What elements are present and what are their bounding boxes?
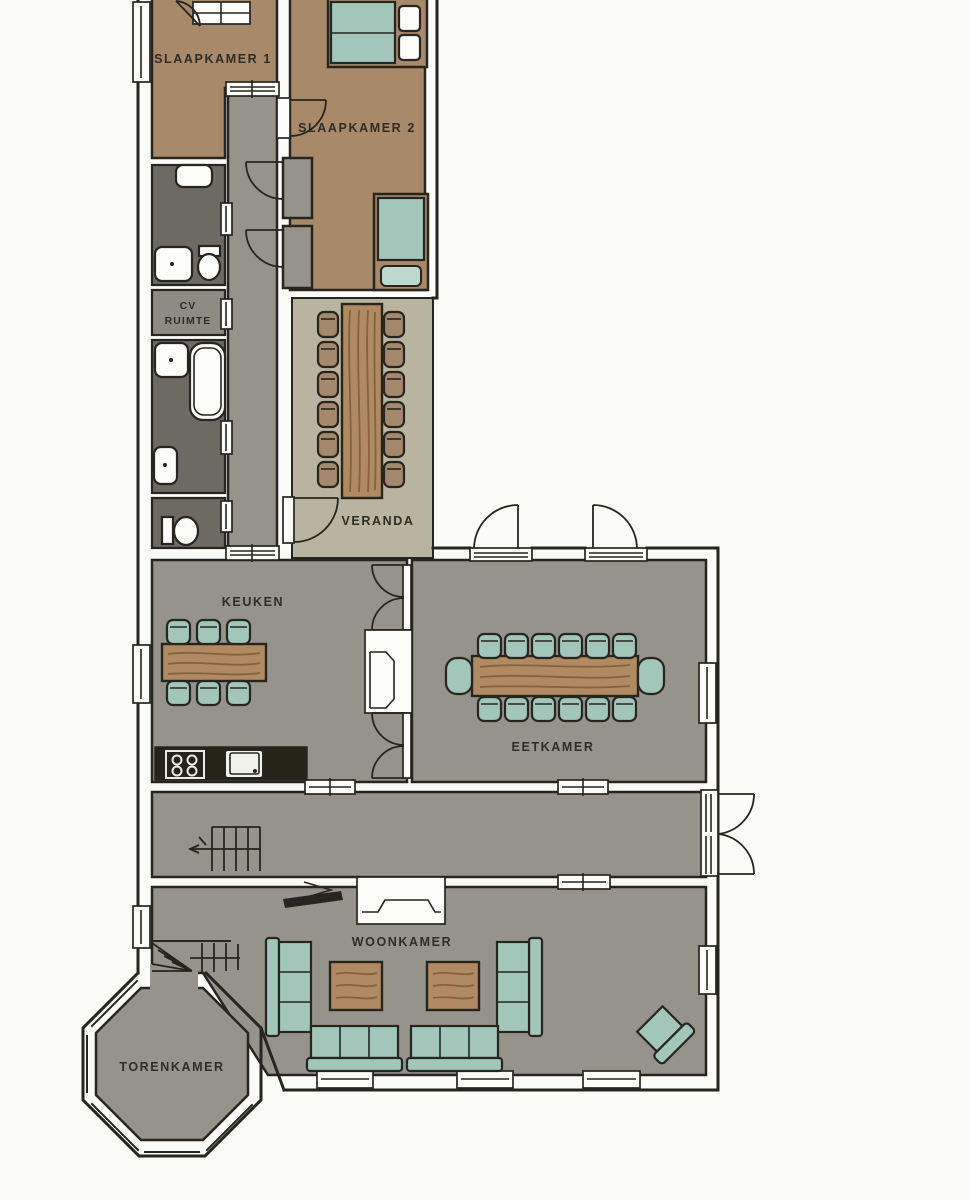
shower	[155, 343, 188, 377]
window	[583, 1071, 640, 1088]
door-arc	[470, 505, 532, 561]
dining-chair	[478, 697, 501, 721]
coffee-table-1	[330, 962, 382, 1010]
veranda-chair	[318, 342, 338, 367]
kitchen-chair	[227, 681, 250, 705]
hallway-north	[228, 95, 277, 550]
door-threshold	[221, 421, 232, 454]
toilet	[198, 246, 220, 280]
label-veranda: VERANDA	[341, 514, 414, 528]
veranda-chair	[318, 312, 338, 337]
north-doors	[470, 505, 647, 561]
door-threshold	[558, 778, 608, 796]
window	[317, 1071, 373, 1088]
dining-chair	[478, 634, 501, 658]
shower	[155, 247, 192, 281]
veranda-chair	[384, 342, 404, 367]
door-threshold	[221, 501, 232, 532]
dining-chair	[446, 658, 472, 694]
door-threshold	[221, 299, 232, 329]
label-torenkamer: TORENKAMER	[119, 1060, 224, 1074]
label-slaapkamer-2: SLAAPKAMER 2	[298, 121, 416, 135]
dining-chair	[505, 634, 528, 658]
window	[133, 906, 150, 948]
single-bed	[374, 194, 428, 290]
kitchen-chair	[197, 620, 220, 644]
kitchen-sink-icon	[225, 750, 263, 778]
door-threshold	[221, 203, 232, 235]
kitchen-table	[162, 644, 266, 681]
window	[457, 1071, 513, 1088]
dining-chair	[638, 658, 664, 694]
sofa-bottom-2	[407, 1026, 502, 1071]
window	[133, 645, 150, 703]
label-slaapkamer-1: SLAAPKAMER 1	[154, 52, 272, 66]
door-threshold	[226, 544, 279, 562]
kitchen-chair	[167, 681, 190, 705]
dining-chair	[532, 697, 555, 721]
window	[699, 946, 716, 994]
door-threshold	[226, 80, 279, 98]
label-cv-line2: RUIMTE	[165, 315, 212, 327]
coffee-table-2	[427, 962, 479, 1010]
room-cv-ruimte	[152, 290, 225, 335]
exterior-wall-wing-east	[433, 0, 437, 298]
veranda-chair	[384, 312, 404, 337]
sofa-right	[497, 938, 542, 1036]
fireplace	[357, 877, 445, 924]
bathroom-sink	[154, 447, 177, 484]
dining-table	[472, 656, 638, 696]
floor-plan: SLAAPKAMER 1 SLAAPKAMER 2 CV RUIMTE VERA…	[0, 0, 969, 1200]
dining-chair	[613, 697, 636, 721]
veranda-chair	[318, 432, 338, 457]
closet	[283, 158, 312, 218]
kitchen-counter	[155, 747, 307, 780]
veranda-chair	[384, 402, 404, 427]
veranda-chair	[384, 372, 404, 397]
veranda-chair	[318, 372, 338, 397]
dining-chair	[559, 634, 582, 658]
dining-chair	[532, 634, 555, 658]
veranda-table	[342, 304, 382, 498]
closet	[283, 226, 312, 288]
chimney-breast	[365, 630, 412, 713]
bathtub	[190, 343, 225, 420]
kitchen-chair	[197, 681, 220, 705]
sofa-bottom-1	[307, 1026, 402, 1071]
veranda-chair	[384, 462, 404, 487]
kitchen-chair	[167, 620, 190, 644]
veranda-chair	[384, 432, 404, 457]
sofa-left	[266, 938, 311, 1036]
label-keuken: KEUKEN	[222, 595, 284, 609]
wardrobe	[193, 2, 250, 24]
dining-chair	[505, 697, 528, 721]
floor-plan-drawing: SLAAPKAMER 1 SLAAPKAMER 2 CV RUIMTE VERA…	[0, 0, 969, 1200]
door-threshold	[558, 873, 610, 891]
toilet	[162, 517, 198, 545]
veranda-chair	[318, 402, 338, 427]
pillow	[399, 35, 420, 60]
bathroom-sink	[176, 165, 212, 187]
door-threshold	[305, 778, 355, 796]
label-eetkamer: EETKAMER	[512, 740, 595, 754]
label-cv-line1: CV	[180, 300, 197, 312]
toilet-room-fixtures	[162, 517, 198, 545]
double-door	[701, 790, 754, 876]
eetkamer-furniture	[446, 634, 664, 721]
window	[699, 663, 716, 723]
pillow	[399, 6, 420, 31]
dining-chair	[586, 697, 609, 721]
double-bed	[328, 0, 427, 67]
kitchen-chair	[227, 620, 250, 644]
dining-chair	[613, 634, 636, 658]
door-arc	[585, 505, 647, 561]
pillow	[381, 266, 421, 286]
veranda-chair	[318, 462, 338, 487]
window	[133, 2, 150, 82]
dining-chair	[586, 634, 609, 658]
label-woonkamer: WOONKAMER	[352, 935, 453, 949]
dining-chair	[559, 697, 582, 721]
